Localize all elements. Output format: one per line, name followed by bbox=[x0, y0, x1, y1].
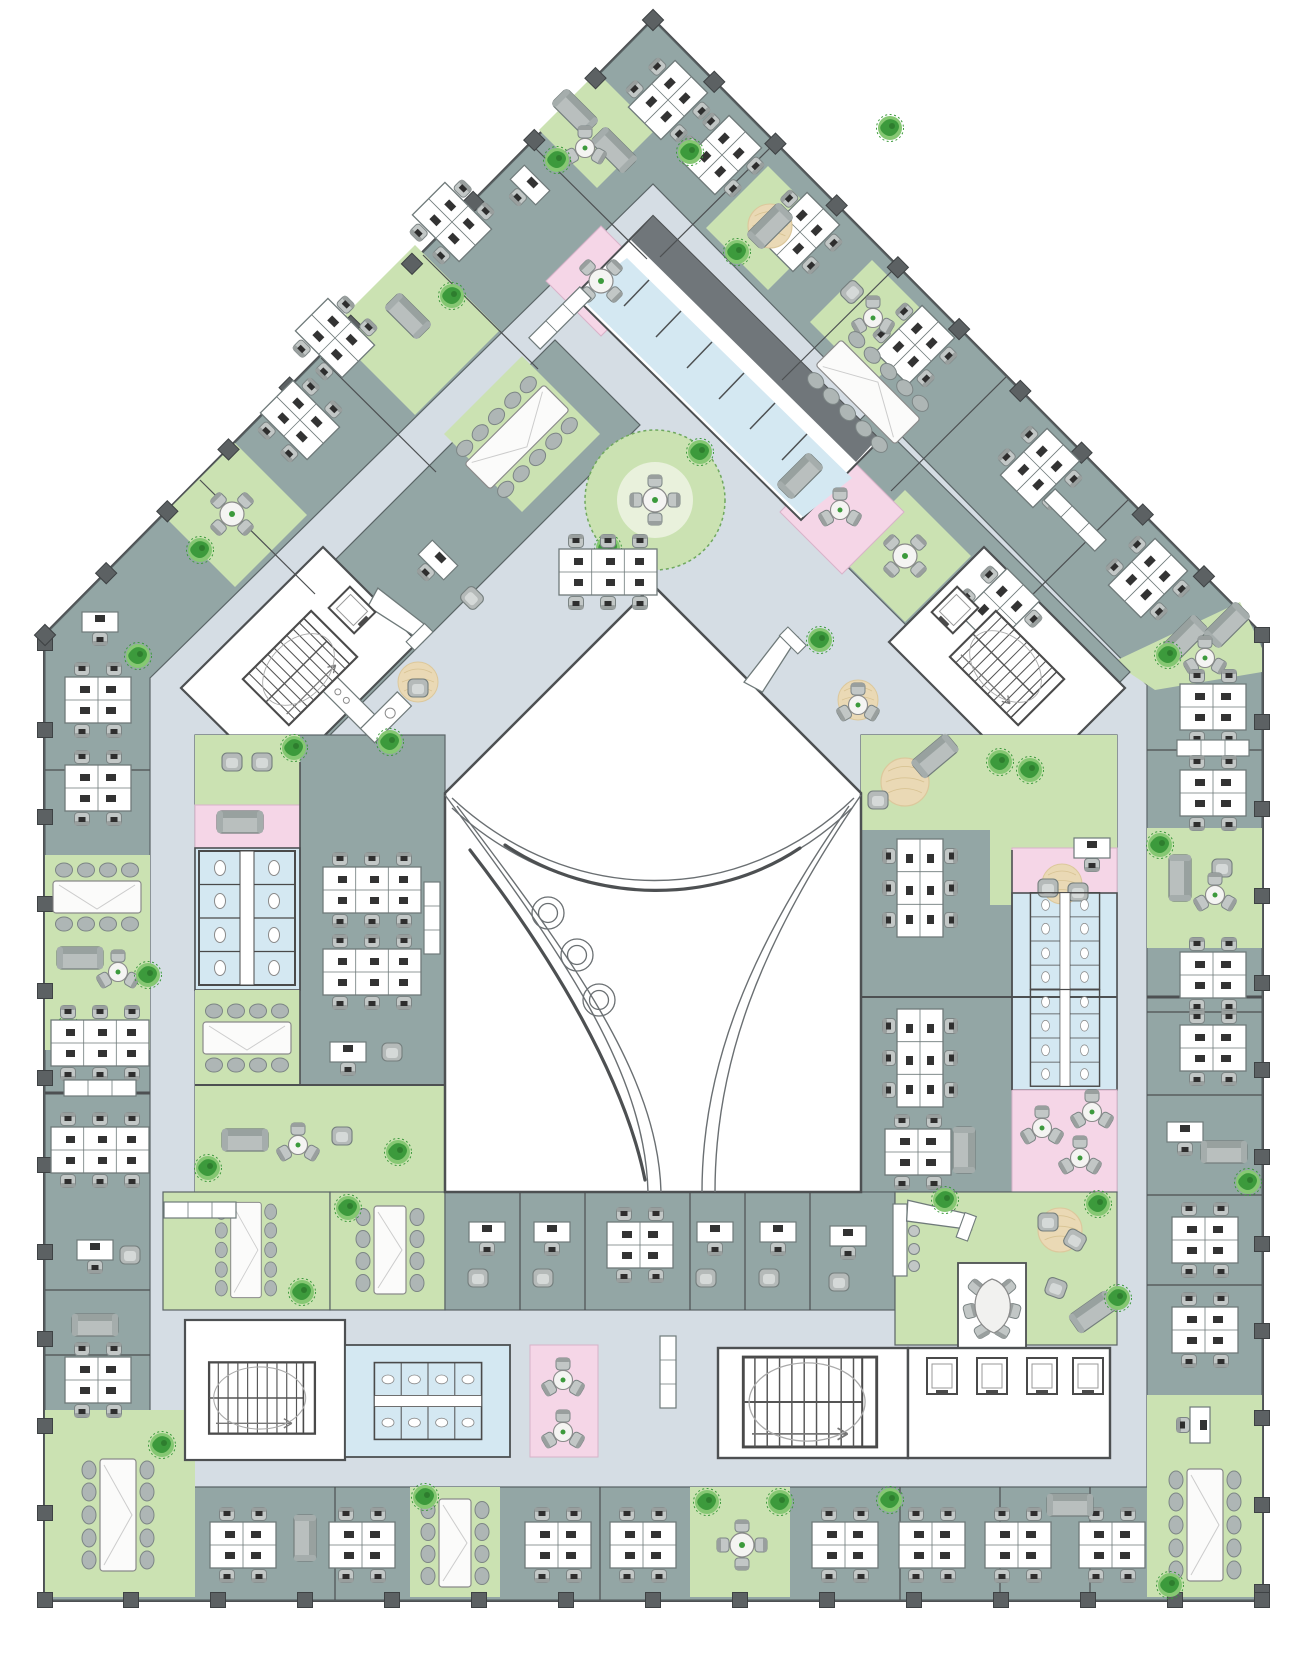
facade-column bbox=[1255, 1411, 1270, 1426]
desk-pod-6 bbox=[51, 1113, 149, 1188]
facade-column bbox=[38, 1419, 53, 1434]
facade-column bbox=[1255, 1498, 1270, 1513]
armchair bbox=[533, 1269, 553, 1287]
plant bbox=[877, 115, 904, 142]
facade-column bbox=[472, 1593, 487, 1608]
facade-column bbox=[1255, 802, 1270, 817]
desk-pod-6 bbox=[323, 935, 421, 1010]
sofa bbox=[222, 1129, 268, 1151]
sofa bbox=[57, 947, 103, 969]
armchair bbox=[222, 753, 242, 771]
armchair bbox=[332, 1127, 352, 1145]
floor-plan-svg bbox=[0, 0, 1307, 1654]
floor-plan bbox=[0, 0, 1307, 1654]
armchair bbox=[408, 679, 428, 697]
sideboard bbox=[164, 1202, 236, 1218]
sideboard bbox=[424, 882, 440, 954]
facade-column bbox=[1255, 976, 1270, 991]
facade-column bbox=[38, 810, 53, 825]
sofa bbox=[953, 1127, 975, 1173]
facade-column bbox=[38, 1158, 53, 1173]
armchair bbox=[1038, 1213, 1058, 1231]
facade-column bbox=[646, 1593, 661, 1608]
facade-column bbox=[1255, 1150, 1270, 1165]
facade-column bbox=[298, 1593, 313, 1608]
armchair bbox=[120, 1246, 140, 1264]
sofa bbox=[294, 1515, 316, 1561]
facade-column bbox=[38, 1332, 53, 1347]
elevator bbox=[977, 1358, 1007, 1394]
facade-column bbox=[1081, 1593, 1096, 1608]
facade-column bbox=[38, 1071, 53, 1086]
sofa bbox=[72, 1314, 118, 1336]
facade-column bbox=[1255, 715, 1270, 730]
facade-column bbox=[38, 723, 53, 738]
facade-column bbox=[1255, 1237, 1270, 1252]
elevator bbox=[1073, 1358, 1103, 1394]
armchair bbox=[382, 1043, 402, 1061]
facade-column bbox=[38, 1245, 53, 1260]
armchair bbox=[468, 1269, 488, 1287]
sofa bbox=[1047, 1494, 1093, 1516]
meeting-table-12 bbox=[1169, 1469, 1241, 1581]
armchair bbox=[1038, 879, 1058, 897]
facade-column bbox=[1255, 1324, 1270, 1339]
facade-column bbox=[211, 1593, 226, 1608]
meeting-table-12 bbox=[82, 1459, 154, 1571]
desk-pod-6 bbox=[559, 535, 657, 610]
elevator bbox=[927, 1358, 957, 1394]
armchair bbox=[696, 1269, 716, 1287]
facade-column bbox=[907, 1593, 922, 1608]
facade-column bbox=[38, 897, 53, 912]
facade-column bbox=[38, 1506, 53, 1521]
elevator bbox=[1027, 1358, 1057, 1394]
armchair bbox=[252, 753, 272, 771]
facade-column bbox=[1255, 1063, 1270, 1078]
desk-pod-6 bbox=[883, 1009, 958, 1107]
facade-column bbox=[1255, 1593, 1270, 1608]
sideboard bbox=[660, 1336, 676, 1408]
facade-column bbox=[994, 1593, 1009, 1608]
sofa bbox=[1169, 855, 1191, 901]
facade-column bbox=[38, 1593, 53, 1608]
sofa bbox=[217, 811, 263, 833]
facade-column bbox=[1255, 889, 1270, 904]
facade-column bbox=[124, 1593, 139, 1608]
facade-column bbox=[38, 984, 53, 999]
desk-pod-6 bbox=[883, 839, 958, 937]
armchair bbox=[868, 791, 888, 809]
sideboard bbox=[1177, 740, 1249, 756]
desk-pod-6 bbox=[323, 853, 421, 928]
sideboard bbox=[64, 1080, 136, 1096]
staircase bbox=[743, 1357, 876, 1447]
armchair bbox=[829, 1273, 849, 1291]
facade-column bbox=[733, 1593, 748, 1608]
sofa bbox=[1201, 1141, 1247, 1163]
facade-column bbox=[820, 1593, 835, 1608]
facade-column bbox=[385, 1593, 400, 1608]
armchair bbox=[759, 1269, 779, 1287]
armchair bbox=[1068, 883, 1088, 901]
desk-pod-6 bbox=[51, 1006, 149, 1081]
facade-column bbox=[1255, 628, 1270, 643]
facade-column bbox=[559, 1593, 574, 1608]
staircase bbox=[209, 1362, 315, 1433]
